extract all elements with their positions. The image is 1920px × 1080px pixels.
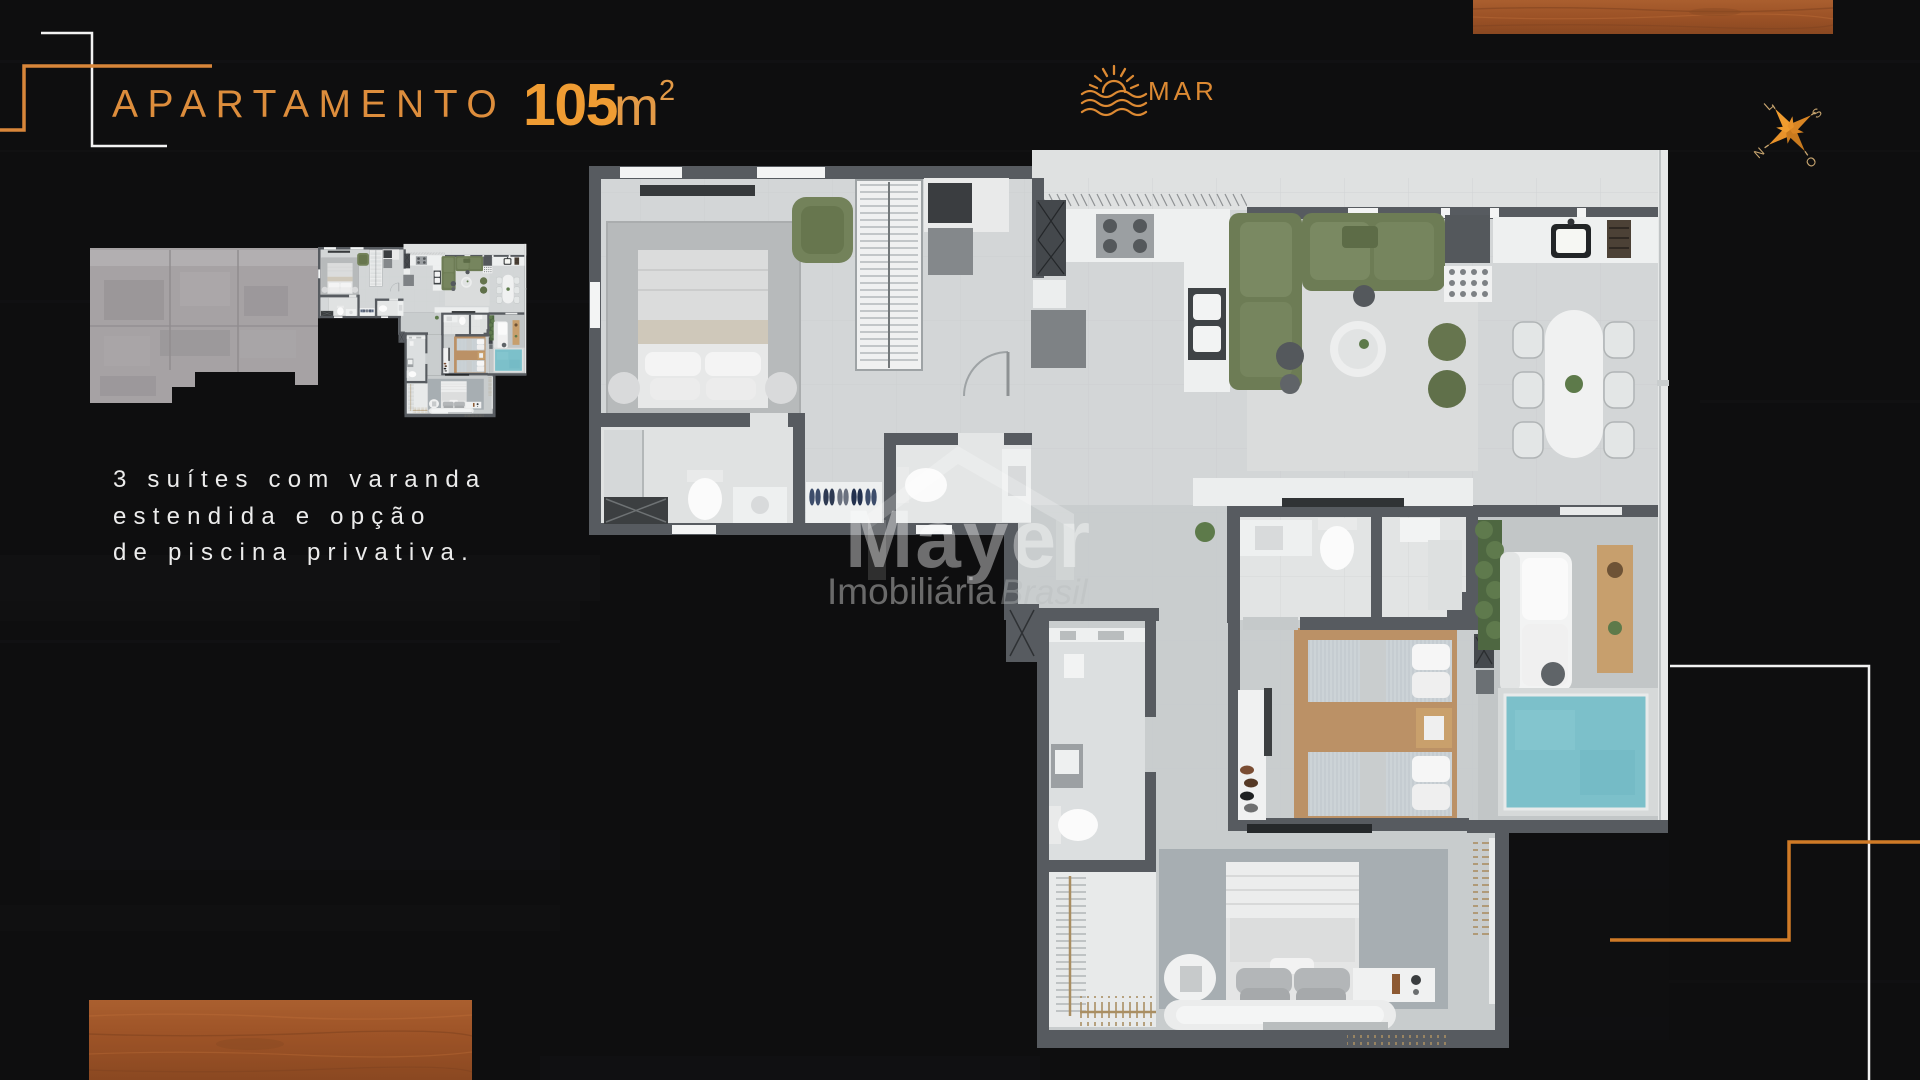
svg-text:2: 2 <box>659 75 675 107</box>
svg-text:105: 105 <box>523 72 618 138</box>
svg-text:Imobiliária: Imobiliária <box>827 571 996 612</box>
svg-text:3 suítes com varanda: 3 suítes com varanda <box>113 466 486 493</box>
svg-text:MAR: MAR <box>1148 76 1218 106</box>
svg-text:estendida e opção: estendida e opção <box>113 503 432 530</box>
svg-text:APARTAMENTO: APARTAMENTO <box>112 83 506 126</box>
svg-text:de piscina privativa.: de piscina privativa. <box>113 539 475 566</box>
svg-text:m: m <box>614 77 659 137</box>
svg-text:Brasil: Brasil <box>1000 573 1089 612</box>
